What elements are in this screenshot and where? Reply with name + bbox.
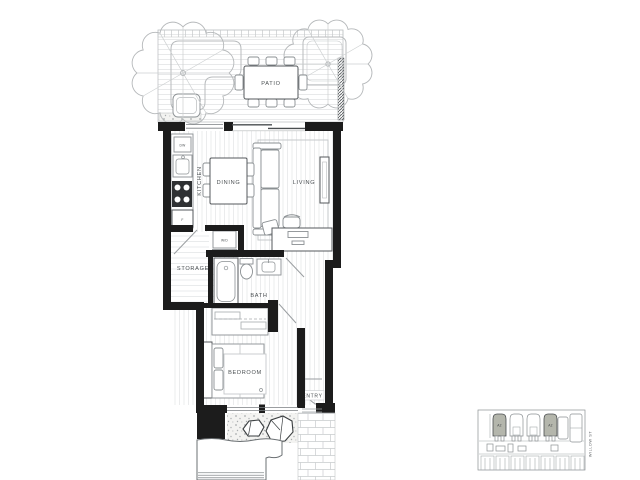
- toilet-tank: [240, 259, 253, 265]
- entry-label: ENTRY: [302, 394, 322, 400]
- laundry-closet: W/D: [209, 229, 240, 252]
- burner: [184, 185, 190, 191]
- sofa-cushion: [261, 150, 279, 188]
- dining-room: DINING: [203, 158, 254, 204]
- pillow: [214, 348, 223, 368]
- patio-chair: [284, 57, 295, 65]
- patio-side-screen: [338, 58, 344, 120]
- burner: [175, 185, 181, 191]
- dining-label: DINING: [217, 180, 241, 186]
- keyplan-unit-label: A2: [497, 424, 501, 428]
- desk-chair: [283, 217, 300, 228]
- living-label: LIVING: [293, 180, 316, 186]
- patio-chair: [266, 99, 277, 107]
- tv-unit: [320, 157, 329, 203]
- planter-wall: [197, 413, 225, 439]
- patio-chair: [248, 57, 259, 65]
- desk-monitor: [288, 232, 308, 238]
- floorplan-page: PATIO LIVING DINING DW: [0, 0, 640, 480]
- patio-edge-band: [158, 30, 343, 37]
- bedroom-label: BEDROOM: [228, 370, 262, 376]
- street-label: WILLOW ST: [588, 431, 593, 457]
- patio-chair: [284, 99, 295, 107]
- bath-vanity: [257, 259, 281, 275]
- patio-label: PATIO: [261, 81, 280, 87]
- fridge-label: F: [181, 218, 183, 222]
- bed-headboard: [203, 342, 212, 398]
- burner: [184, 197, 190, 203]
- kitchen-label: KITCHEN: [197, 166, 203, 195]
- keyplan-unit: [527, 414, 540, 436]
- cooktop: [172, 181, 192, 207]
- keyplan-block: [558, 417, 568, 439]
- storage-label: STORAGE: [177, 266, 209, 272]
- patio-chair: [266, 57, 277, 65]
- keyplan-unit-label: A2: [548, 424, 552, 428]
- bath-label: BATH: [250, 293, 267, 299]
- burner: [175, 197, 181, 203]
- patio-chair: [235, 75, 243, 90]
- kitchen-window: [186, 125, 223, 129]
- key-plan: A2 A2 WILLOW ST: [478, 410, 593, 470]
- rear-landscape: [197, 413, 335, 480]
- pillow: [214, 370, 223, 390]
- floor-plan-drawing: PATIO LIVING DINING DW: [0, 0, 640, 480]
- patio-chair: [248, 99, 259, 107]
- desk-keyboard: [292, 241, 304, 245]
- hedge-strip: [198, 472, 264, 479]
- dishwasher-label: DW: [180, 144, 187, 148]
- toilet-bowl: [241, 264, 253, 279]
- patio-area: PATIO: [132, 20, 372, 124]
- laundry-label: W/D: [221, 239, 228, 243]
- brick-path: [298, 413, 335, 480]
- keyplan-unit: [510, 414, 523, 436]
- sliding-door: [232, 125, 305, 129]
- patio-chair: [299, 75, 307, 90]
